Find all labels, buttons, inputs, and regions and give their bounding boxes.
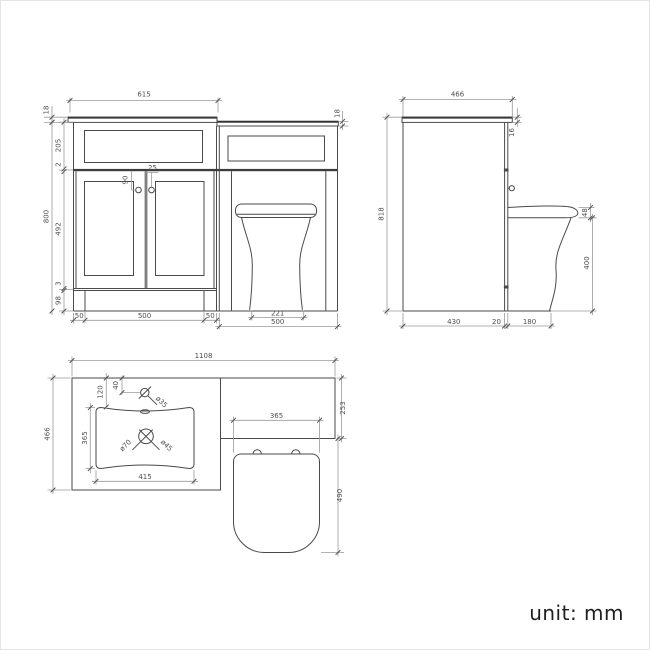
dim-plan-total-width: 1108 <box>195 352 213 360</box>
dim-cabinet-depth: 430 <box>447 318 460 326</box>
dim-gap: 2 <box>55 162 63 166</box>
toilet-seat-side <box>508 206 578 218</box>
right-door-knob <box>149 187 155 193</box>
dim-panel-thickness: 20 <box>492 318 501 326</box>
dim-knob-offset: 25 <box>148 164 157 172</box>
side-carcass <box>403 122 551 311</box>
dim-drawer-height: 205 <box>55 139 63 152</box>
dim-side-total-height: 818 <box>378 207 386 220</box>
dim-tap-ticks <box>104 376 125 410</box>
right-door-panel <box>156 182 205 276</box>
dim-basin-depth: 365 <box>81 431 89 444</box>
dim-side-depth: 466 <box>451 91 465 99</box>
dim-basin-width: 415 <box>138 473 151 481</box>
basin-overflow <box>141 410 150 414</box>
dim-front-counter-right: 18 <box>334 109 342 118</box>
dim-left-inset: 50 <box>75 312 84 320</box>
dim-365s-lines <box>230 417 324 453</box>
dim-seat-width: 365 <box>270 412 283 420</box>
plan-view: 1108 466 120 40 ø35 ø70 ø45 365 415 365 … <box>44 352 348 557</box>
dim-tap-back-offset: 120 <box>97 385 105 398</box>
dim-tap-offset: 40 <box>112 381 120 390</box>
wc-carcass <box>219 126 337 311</box>
dim-total-height: 800 <box>43 210 51 223</box>
dim-plinth-height: 98 <box>55 296 63 305</box>
left-door-knob <box>136 187 142 193</box>
toilet-seat-plan <box>233 454 319 553</box>
dim-pan-base-width: 221 <box>271 309 284 317</box>
dim-466-lines <box>399 96 516 117</box>
dim-door-height: 492 <box>55 222 63 235</box>
left-door-panel <box>85 182 134 276</box>
dim-drain-diameter-b: ø45 <box>159 438 174 453</box>
mid-rail <box>74 169 338 171</box>
vanity-drawer-front <box>85 131 203 163</box>
dim-side-counter-thickness: 16 <box>508 128 516 137</box>
technical-drawing: 615 18 18 205 2 492 3 98 800 90 25 50 50… <box>0 0 650 650</box>
dim-wc-unit-width: 500 <box>271 318 284 326</box>
dim-tap-hole-diameter: ø35 <box>154 395 169 410</box>
dim-front-counter-left: 18 <box>43 106 51 115</box>
dim-pan-height: 400 <box>583 256 591 269</box>
dim-seat-thickness: 48 <box>581 208 589 217</box>
dim-615-lines <box>66 98 222 113</box>
drain-cross-leaders <box>133 430 160 450</box>
wc-front-panel <box>228 136 325 161</box>
dim-drain-diameter-a: ø70 <box>118 438 133 453</box>
hinge-mark-bottom <box>504 286 509 289</box>
seat-hinges <box>253 450 300 454</box>
unit-note: unit: mm <box>529 601 624 625</box>
dim-818-lines <box>383 113 404 315</box>
dim-front-top-width: 615 <box>137 91 150 99</box>
side-elevation-view: 466 16 818 48 400 430 20 180 <box>378 91 597 330</box>
dim-knob-drop: 90 <box>122 176 130 185</box>
countertop-plan <box>72 378 335 490</box>
dim-wc-counter-depth: 253 <box>339 401 347 414</box>
toilet-seat-front <box>236 204 317 218</box>
dim-plan-counter-depth: 466 <box>44 427 52 441</box>
dim-bottom-rail: 3 <box>55 281 63 285</box>
dim-pan-projection-plan: 490 <box>336 489 344 502</box>
side-knob <box>509 186 514 191</box>
toilet-pan-front <box>242 218 311 310</box>
hinge-mark-top <box>504 169 509 172</box>
dim-right-inset: 50 <box>206 312 215 320</box>
dim-pan-projection-side: 180 <box>523 318 536 326</box>
dim-unit-width: 500 <box>138 312 151 320</box>
vanity-carcass <box>74 122 217 311</box>
front-elevation-view: 615 18 18 205 2 492 3 98 800 90 25 50 50… <box>43 91 349 330</box>
toilet-pan-side <box>550 218 572 311</box>
